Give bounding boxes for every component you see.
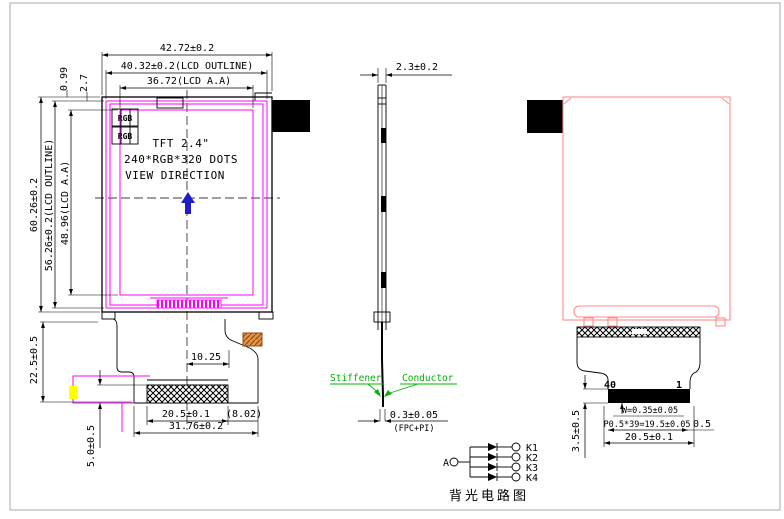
back-corner-mark-right [722, 98, 729, 104]
led-branch-4: K4 [470, 473, 538, 484]
foot-left [102, 312, 115, 319]
led-diode-icon [488, 443, 497, 451]
tape-mark-1 [381, 128, 386, 143]
dim-tape-length: 5.0±0.5 [86, 425, 97, 467]
lcd-module-drawing: RGB RGB TFT 2.4" 240*RGB*320 DOTS VIEW D… [0, 0, 784, 519]
fpc-side-profile [382, 322, 383, 407]
fpc-component [243, 333, 262, 346]
backlight-circuit: A K1 K2 K3 [443, 443, 538, 504]
rgb-pixel-grid-1: RGB [112, 109, 138, 126]
anode-label: A [443, 458, 449, 469]
driver-contact-strip [157, 300, 221, 308]
rgb-label-1: RGB [118, 114, 133, 123]
dim-pin-length: 3.5±0.5 [571, 410, 582, 452]
back-tab-2 [608, 318, 617, 326]
led-diode-icon [488, 473, 497, 481]
view-direction-arrow-icon [181, 192, 195, 214]
dim-fpc-thickness: 0.3±0.05 [390, 410, 438, 421]
anode-terminal [450, 458, 458, 466]
panel-type-text: TFT 2.4" [153, 137, 210, 150]
conductor-arrow-icon [384, 390, 392, 397]
back-outline [563, 97, 730, 320]
dim-pad-width: W=0.35±0.05 [622, 406, 678, 416]
conductor-label: Conductor [402, 373, 454, 384]
dim-fpc-offset: 10.25 [191, 352, 221, 363]
fpc-tail [113, 319, 262, 403]
front-view: RGB RGB TFT 2.4" 240*RGB*320 DOTS VIEW D… [29, 43, 310, 467]
back-view: 40 1 W=0.35±0.05 P0.5*39=19.5±0.05 0.5 2… [527, 97, 730, 458]
front-tail-dimensions: 22.5±0.5 5.0±0.5 [29, 322, 150, 467]
back-tab-1 [584, 318, 593, 326]
rgb-pixel-grid-2: RGB [112, 127, 138, 144]
side-thickness-dimension: 2.3±0.2 [360, 62, 452, 83]
pin-contact-bar [608, 389, 690, 403]
back-bar-mark [632, 329, 647, 334]
dim-offset-2: 2.7 [79, 74, 90, 92]
tape-mark-3 [381, 272, 386, 288]
dim-width-total: 42.72±0.2 [160, 43, 214, 54]
top-tape-block [272, 100, 310, 132]
resolution-text: 240*RGB*320 DOTS [124, 153, 238, 166]
side-fpc-dimension: 0.3±0.05 (FPC+PI) [358, 409, 448, 434]
cathode-terminal-3 [512, 463, 520, 471]
led-diode-icon [488, 453, 497, 461]
cathode-label-4: K4 [526, 473, 538, 484]
tape-mark-2 [381, 196, 386, 212]
back-tab-3 [716, 318, 725, 326]
top-tab [157, 98, 183, 108]
cathode-terminal-2 [512, 453, 520, 461]
back-corner-mark-left [564, 98, 571, 104]
back-dimensions: W=0.35±0.05 P0.5*39=19.5±0.05 0.5 20.5±0… [571, 375, 714, 458]
dim-height-aa: 48.96(LCD A.A) [60, 161, 71, 245]
foot-right [259, 312, 273, 319]
dim-height-outline: 56.26±0.2(LCD OUTLINE) [44, 139, 55, 271]
dim-contact-width: 20.5±0.1 [162, 409, 210, 420]
dim-pitch: P0.5*39=19.5±0.05 [604, 420, 691, 430]
dim-width-outline: 40.32±0.2(LCD OUTLINE) [121, 61, 253, 72]
gold-finger-area [147, 385, 228, 403]
tape-flap-outline [73, 376, 150, 403]
dim-contact-width-back: 20.5±0.1 [625, 432, 673, 443]
cathode-terminal-4 [512, 473, 520, 481]
front-left-dimensions: 60.26±0.2 56.26±0.2(LCD OUTLINE) 48.96(L… [29, 97, 118, 312]
dim-edge-gap: 0.5 [693, 419, 711, 430]
dim-ref: (8.02) [226, 409, 262, 420]
dim-thickness: 2.3±0.2 [396, 62, 438, 73]
circuit-caption: 背光电路图 [449, 488, 529, 504]
dim-height-total: 60.26±0.2 [29, 178, 40, 232]
led-diode-icon [488, 463, 497, 471]
dim-width-aa: 36.72(LCD A.A) [147, 76, 231, 87]
back-bottom-slot [574, 306, 719, 317]
cathode-terminal-1 [512, 443, 520, 451]
side-annotations: Stiffener Conductor [330, 373, 457, 397]
rgb-label-2: RGB [118, 132, 133, 141]
stiffener-label: Stiffener [330, 373, 382, 384]
yellow-tape-mark [69, 386, 77, 399]
side-view: 2.3±0.2 Stiffener Conductor 0.3±0.05 (FP… [330, 62, 457, 434]
back-fpc: 40 1 [577, 337, 700, 403]
dim-tail-length: 22.5±0.5 [29, 336, 40, 384]
drawing-sheet: RGB RGB TFT 2.4" 240*RGB*320 DOTS VIEW D… [0, 0, 784, 519]
back-tape-block [527, 100, 563, 133]
dim-fpc-width: 31.76±0.2 [169, 421, 223, 432]
view-direction-text: VIEW DIRECTION [125, 169, 225, 182]
fpc-note: (FPC+PI) [394, 424, 435, 434]
dim-offset-1: 0.99 [59, 67, 70, 91]
